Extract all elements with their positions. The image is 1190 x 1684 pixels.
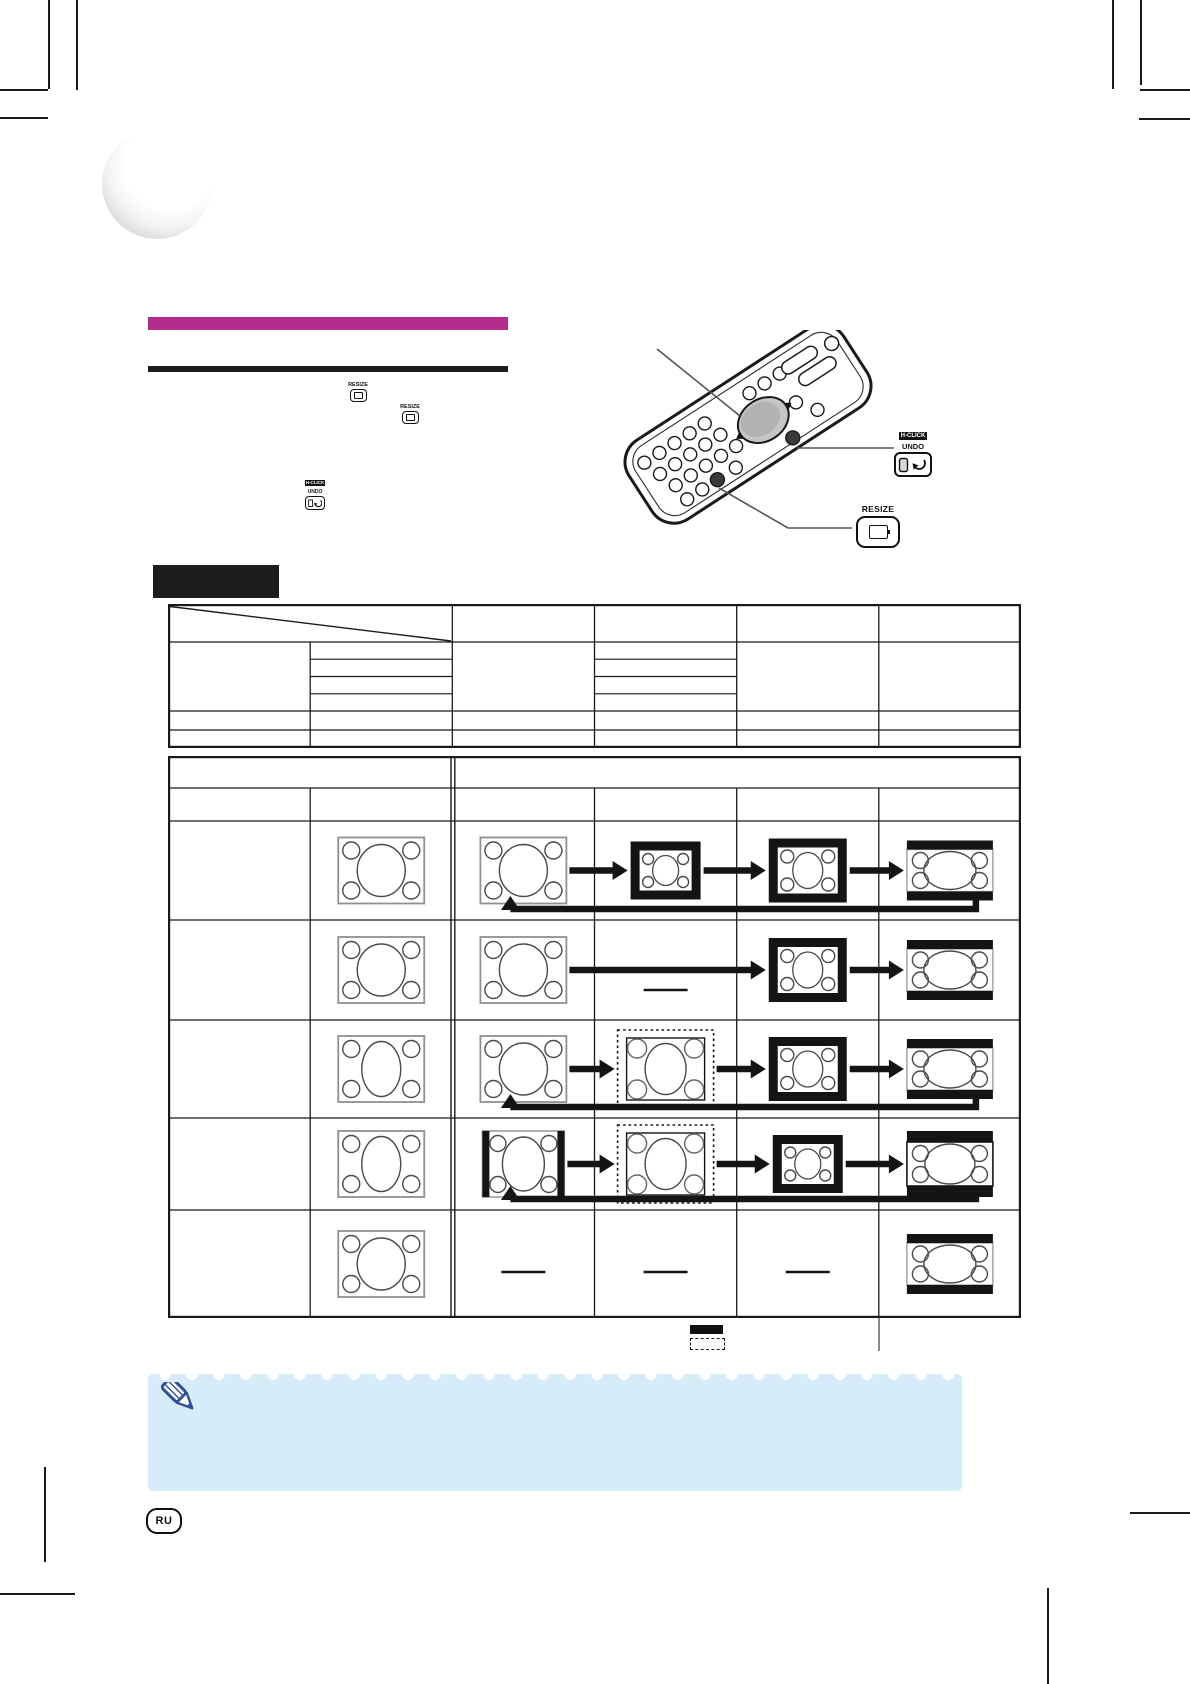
crop-mark [1047,1588,1049,1684]
screen-diagram-black-frame-small [773,1135,843,1193]
hclick-label: H-CLICK [899,432,928,440]
crop-mark [1140,0,1142,85]
crop-mark [1139,118,1190,120]
resize-inline-icon: RESIZE [344,382,372,402]
return-arrow [501,1094,976,1108]
arrow-right-icon [567,1155,614,1174]
arrow-right-icon [717,1060,766,1079]
screen-diagram-dotted-frame [618,1030,714,1108]
screen-diagram-screen-4x3-tall-ellipse [338,1131,424,1197]
arrow-right-icon [717,1155,770,1174]
screen-diagram-screen-4x3 [480,838,566,904]
arrow-right-icon [850,961,904,980]
hclick-undo-inline-icon: H-CLICK UNDO [300,471,330,510]
crop-mark [48,0,50,89]
hclick-undo-callout-icon: H-CLICK UNDO [893,424,933,477]
undo-inline-label: UNDO [300,489,330,495]
resize-inline-icon: RESIZE [396,404,424,424]
resize-inline-label: RESIZE [344,382,372,388]
screen-diagram-screen-4x3 [338,838,424,904]
screen-diagram-screen-4x3 [338,937,424,1003]
resize-callout-icon: RESIZE [848,504,908,548]
crop-mark [0,89,48,91]
screen-diagram-dotted-frame [618,1125,714,1203]
resize-mode-table [168,756,1021,1318]
screen-diagram-letterbox-thick [907,1131,993,1197]
format-table [168,604,1021,748]
crop-mark [1112,0,1114,89]
diagonal-header-line [170,607,451,642]
language-badge: RU [146,1508,182,1534]
resize-inline-label: RESIZE [396,404,424,410]
legend-leader-line [878,1318,880,1351]
resize-button-glyph [402,411,419,424]
hclick-inline-label: H-CLICK [305,480,326,486]
screen-diagram-letterbox [907,1234,993,1294]
screen-diagram-letterbox [907,940,993,1000]
crop-mark [44,1467,46,1562]
screen-diagram-screen-4x3-tall-ellipse [338,1036,424,1102]
arrow-right-icon [846,1155,904,1174]
remote-body [615,330,881,533]
screen-diagram-screen-4x3 [480,1036,566,1102]
resize-button-glyph [856,516,900,548]
resize-button-glyph [350,389,367,402]
screen-diagram-letterbox [907,1039,993,1099]
chapter-sphere-logo [102,129,212,239]
legend-solid-swatch [690,1325,723,1334]
undo-arrow-icon [898,457,928,473]
note-panel [148,1374,962,1491]
arrow-right-icon [569,1060,614,1079]
crop-mark [76,0,78,90]
resize-label: RESIZE [848,504,908,514]
undo-button-glyph [305,496,325,510]
arrow-right-icon [569,861,627,880]
section-accent-bar [148,317,508,330]
manual-page: RESIZE RESIZE H-CLICK UNDO [0,0,1190,1684]
resize-callout-line [719,488,852,528]
screen-diagram-black-frame-medium [769,1037,847,1101]
screen-diagram-black-frame-small [631,842,701,900]
legend-dotted-swatch [690,1338,725,1350]
arrow-right-icon [704,861,766,880]
undo-label: UNDO [893,442,933,451]
screen-diagram-screen-4x3 [338,1231,424,1297]
crop-mark [0,1593,75,1595]
return-arrow [501,1186,976,1200]
return-arrow [501,896,976,910]
screen-diagram-black-frame-medium [769,938,847,1002]
screen-diagram-letterbox [907,841,993,901]
screen-diagram-screen-4x3 [480,937,566,1003]
undo-arrow-icon [308,499,322,508]
pencil-icon [156,1382,208,1430]
screen-diagram-pillarbox [482,1131,564,1197]
crop-mark [1130,1512,1190,1514]
arrow-right-icon [850,861,904,880]
crop-mark [0,117,48,119]
section-rule [148,366,508,372]
hclick-undo-button-glyph [894,452,932,477]
crop-mark [1140,89,1190,91]
arrow-right-icon [850,1060,904,1079]
table-section-chip [153,565,279,598]
screen-diagram-black-frame-medium [769,839,847,903]
